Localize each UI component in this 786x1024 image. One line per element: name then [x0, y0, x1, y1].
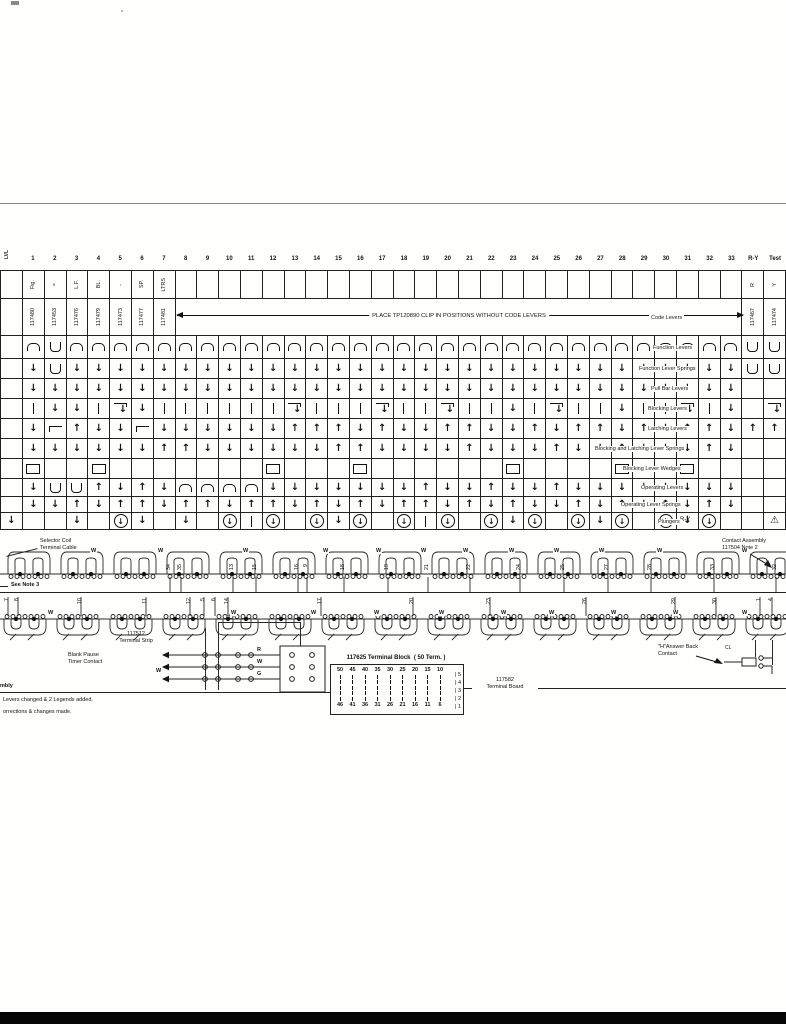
- grid-cell: [394, 271, 416, 299]
- grid-cell: [721, 459, 743, 479]
- grid-cell: ↓: [67, 439, 89, 459]
- wire-number: 13: [229, 564, 235, 570]
- scan-mark: [11, 1, 19, 5]
- grid-cell: [176, 459, 198, 479]
- grid-cell: ↓: [481, 513, 503, 530]
- grid-cell: [23, 459, 45, 479]
- grid-cell: ↑: [481, 479, 503, 497]
- column-header: 29: [633, 256, 655, 262]
- grid-cell: [764, 336, 786, 359]
- grid-cell: [1, 299, 23, 336]
- grid-cell: [197, 459, 219, 479]
- grid-cell: [88, 513, 110, 530]
- grid-cell: ↓: [67, 513, 89, 530]
- grid-cell: ↓: [481, 439, 503, 459]
- grid-cell: ↓: [67, 359, 89, 379]
- grid-cell: ↓: [721, 379, 743, 399]
- grid-cell: [699, 399, 721, 419]
- grid-cell: ↑: [394, 497, 416, 513]
- grid-cell: ↓: [481, 497, 503, 513]
- grid-cell: [263, 299, 285, 336]
- grid-cell: ↓: [154, 359, 176, 379]
- wire-color-w: W: [155, 668, 162, 674]
- grid-cell: [459, 271, 481, 299]
- column-header: 19: [415, 256, 437, 262]
- grid-cell: ↓: [132, 399, 154, 419]
- grid-cell: ↑: [67, 497, 89, 513]
- grid-cell: [328, 271, 350, 299]
- grid-cell: ↓: [88, 439, 110, 459]
- grid-cell: [219, 399, 241, 419]
- grid-cell: [415, 459, 437, 479]
- grid-cell: ↓: [263, 419, 285, 439]
- grid-cell: ↑: [241, 497, 263, 513]
- grid-cell: ↓: [699, 379, 721, 399]
- column-header: 15: [328, 256, 350, 262]
- grid-cell: ↓: [503, 479, 525, 497]
- wire-number: 12: [186, 598, 192, 604]
- grid-cell: [721, 336, 743, 359]
- grid-cell: ↓: [415, 359, 437, 379]
- grid-cell: ↑: [306, 497, 328, 513]
- grid-cell: [699, 299, 721, 336]
- grid-row-blocking-latching-springs: ↓↓↓↓↓↓↑↑↓↓↓↓↓↓↑↑↓↓↓↓↑↓↓↓↑↓↓↑↓↓↓↑↓Blockin…: [1, 439, 786, 459]
- wire-color-w: W: [420, 548, 427, 554]
- grid-cell: ↓: [415, 379, 437, 399]
- grid-row-function-lever-springs: ↓↓↓↓↓↓↓↓↓↓↓↓↓↓↓↓↓↓↓↓↓↓↓↓↓↓↓↓↓↓↓↓Function…: [1, 359, 786, 379]
- grid-cell: [612, 271, 634, 299]
- grid-cell: [655, 271, 677, 299]
- grid-cell: ↑: [568, 419, 590, 439]
- row-label: Operating Levers: [639, 485, 685, 491]
- grid-cell: [241, 336, 263, 359]
- grid-cell: [45, 419, 67, 439]
- grid-cell: ↑: [415, 479, 437, 497]
- grid-cell: ↓: [612, 359, 634, 379]
- grid-cell: ↓: [110, 513, 132, 530]
- grid-cell: ↑: [350, 497, 372, 513]
- grid-cell: ↓: [590, 497, 612, 513]
- terminal-board-label: 117582 Terminal Board: [472, 677, 538, 691]
- terminal-column: 1511: [423, 667, 433, 708]
- grid-cell: ↓: [285, 497, 307, 513]
- wire-color-w: W: [500, 610, 507, 616]
- grid-cell: ↓: [524, 497, 546, 513]
- wire-number: 27: [604, 564, 610, 570]
- wire-color-w: W: [373, 610, 380, 616]
- grid-cell: ↓: [328, 479, 350, 497]
- grid-cell: ↓: [132, 513, 154, 530]
- terminal-column: 106: [435, 667, 445, 708]
- grid-cell: ↓: [154, 497, 176, 513]
- note-line-2: orrections & changes made.: [3, 709, 71, 716]
- grid-cell: ↓: [721, 419, 743, 439]
- grid-cell: [415, 399, 437, 419]
- grid-cell: ↓: [23, 479, 45, 497]
- column-header: 28: [611, 256, 633, 262]
- grid-cell: [45, 479, 67, 497]
- grid-cell: ↓: [612, 379, 634, 399]
- column-header: 10: [218, 256, 240, 262]
- grid-cell: ↑: [415, 497, 437, 513]
- see-note-dash: [0, 586, 8, 587]
- grid-cell: ↓: [263, 439, 285, 459]
- grid-cell: ↓: [241, 439, 263, 459]
- wire-color-w: W: [462, 548, 469, 554]
- grid-cell: [197, 479, 219, 497]
- grid-cell: [285, 459, 307, 479]
- grid-cell: [524, 336, 546, 359]
- grid-cell: [394, 459, 416, 479]
- row-label: Function Levers: [651, 345, 694, 351]
- strip-wire-letter: W: [256, 659, 263, 665]
- column-header: 30: [655, 256, 677, 262]
- grid-cell: ↓: [241, 359, 263, 379]
- grid-cell: BL.: [88, 271, 110, 299]
- terminal-block-title: 117625 Terminal Block ( 50 Term. ): [330, 655, 462, 663]
- grid-cell: ↓: [524, 479, 546, 497]
- grid-cell: ↓: [23, 497, 45, 513]
- wire-number: 8: [14, 598, 20, 601]
- grid-cell: [350, 399, 372, 419]
- wire-color-w: W: [375, 548, 382, 554]
- grid-cell: ↓: [590, 359, 612, 379]
- grid-cell: [241, 513, 263, 530]
- terminal-column: 5046: [335, 667, 345, 708]
- row-label: Blocking and Latching Lever Springs: [593, 446, 686, 452]
- grid-cell: ↓: [394, 359, 416, 379]
- grid-cell: [459, 513, 481, 530]
- grid-cell: [154, 513, 176, 530]
- strip-wire-letter: G: [256, 671, 262, 677]
- grid-cell: ↓: [721, 439, 743, 459]
- grid-cell: 117480: [23, 299, 45, 336]
- grid-cell: ↓: [67, 379, 89, 399]
- column-header: 6: [131, 256, 153, 262]
- grid-row-plungers: ↓↓↓↓↓↓↓↓↓↓↓↓↓↓↓↓↓↓↓↓↓⚠Plungers: [1, 513, 786, 530]
- terminal-column: 2521: [398, 667, 408, 708]
- terminal-column: 4541: [348, 667, 358, 708]
- column-header: 8: [175, 256, 197, 262]
- grid-cell: ↓: [263, 379, 285, 399]
- wire-color-w: W: [598, 548, 605, 554]
- grid-cell: ↑: [590, 419, 612, 439]
- grid-cell: [45, 359, 67, 379]
- grid-cell: [219, 271, 241, 299]
- grid-cell: ↓: [285, 379, 307, 399]
- grid-cell: [285, 271, 307, 299]
- grid-cell: [742, 336, 764, 359]
- grid-cell: [241, 271, 263, 299]
- grid-cell: [328, 299, 350, 336]
- grid-cell: [372, 336, 394, 359]
- grid-cell: ↓: [394, 419, 416, 439]
- grid-cell: ↓: [459, 359, 481, 379]
- grid-cell: Y: [764, 271, 786, 299]
- grid-cell: [437, 459, 459, 479]
- grid-cell: [132, 419, 154, 439]
- grid-cell: ↓: [568, 513, 590, 530]
- grid-cell: ↓: [241, 379, 263, 399]
- grid-cell: ↓: [568, 379, 590, 399]
- column-header: R-Y: [742, 256, 764, 262]
- grid-cell: [764, 439, 786, 459]
- row-label: Plungers: [656, 519, 682, 525]
- grid-cell: ↑: [306, 419, 328, 439]
- grid-cell: [45, 336, 67, 359]
- column-header: 33: [721, 256, 743, 262]
- grid-cell: SP.: [132, 271, 154, 299]
- wire-color-w: W: [508, 548, 515, 554]
- grid-cell: ↓: [721, 479, 743, 497]
- grid-cell: ↓: [219, 439, 241, 459]
- grid-cell: [350, 271, 372, 299]
- grid-cell: 117473: [110, 299, 132, 336]
- grid-cell: [176, 399, 198, 419]
- grid-cell: ↓: [612, 479, 634, 497]
- grid-cell: ↑: [88, 479, 110, 497]
- row-label: Latching Levers: [646, 426, 689, 432]
- grid-row-blocking-lever-wedges: Blocking Lever Wedges: [1, 459, 786, 479]
- grid-cell: ↓: [88, 497, 110, 513]
- level-chart-grid: LVL 123456789101112131415161718192021222…: [0, 248, 786, 530]
- wire-color-w: W: [242, 548, 249, 554]
- column-header: 24: [524, 256, 546, 262]
- grid-cell: [742, 399, 764, 419]
- wire-number: 28: [647, 564, 653, 570]
- grid-cell: ↓: [350, 513, 372, 530]
- grid-cell: ↓: [721, 399, 743, 419]
- grid-cell: ↓: [503, 379, 525, 399]
- grid-cell: 117481: [154, 299, 176, 336]
- terminal-column: 2016: [410, 667, 420, 708]
- column-header: 14: [306, 256, 328, 262]
- terminal-row-number: | 5: [455, 672, 461, 678]
- column-header: 22: [480, 256, 502, 262]
- wire-color-w: W: [90, 548, 97, 554]
- grid-cell: ↓: [524, 513, 546, 530]
- wire-number: 26: [582, 598, 588, 604]
- column-header: 27: [590, 256, 612, 262]
- grid-cell: ↓: [350, 419, 372, 439]
- grid-cell: ⚠: [764, 513, 786, 530]
- grid-cell: ↑: [546, 439, 568, 459]
- grid-cell: [306, 459, 328, 479]
- grid-cell: 117453: [45, 299, 67, 336]
- grid-cell: ↓: [154, 419, 176, 439]
- grid-cell: ↓: [437, 513, 459, 530]
- grid-row-operating-levers: ↓↑↓↑↓↓↓↓↓↓↓↓↑↓↓↑↓↓↑↓↓↓↓↓↓↓↓Operating Lev…: [1, 479, 786, 497]
- grid-cell: [197, 271, 219, 299]
- grid-cell: ↓: [328, 513, 350, 530]
- grid-cell: Fig.: [23, 271, 45, 299]
- grid-cell: [699, 336, 721, 359]
- strip-wire-letter: R: [256, 647, 262, 653]
- grid-cell: R: [742, 271, 764, 299]
- grid-cell: [67, 479, 89, 497]
- schematic-page: LVL 123456789101112131415161718192021222…: [0, 0, 786, 1024]
- grid-cell: [524, 459, 546, 479]
- grid-cell: [459, 459, 481, 479]
- terminal-column: 3026: [385, 667, 395, 708]
- grid-cell: [742, 459, 764, 479]
- grid-cell: [524, 399, 546, 419]
- column-header: 18: [393, 256, 415, 262]
- grid-cell: [699, 271, 721, 299]
- grid-cell: [612, 299, 634, 336]
- grid-cell: ↓: [23, 359, 45, 379]
- blank-pause-circuit: [160, 642, 340, 694]
- column-header: 1: [22, 256, 44, 262]
- grid-cell: ↓: [437, 497, 459, 513]
- grid-cell: ↓: [132, 439, 154, 459]
- grid-cell: ↓: [437, 399, 459, 419]
- grid-cell: ↑: [132, 497, 154, 513]
- column-header: 25: [546, 256, 568, 262]
- wire-color-w: W: [741, 548, 748, 554]
- page-fold-line: [0, 203, 786, 204]
- grid-cell: ↓: [23, 419, 45, 439]
- wire-number: 1: [756, 598, 762, 601]
- grid-cell: [633, 513, 655, 530]
- column-header: 3: [66, 256, 88, 262]
- grid-cell: [350, 459, 372, 479]
- grid-cell: [176, 479, 198, 497]
- wire-number: 17: [317, 598, 323, 604]
- grid-cell: [241, 399, 263, 419]
- grid-cell: ↓: [394, 513, 416, 530]
- grid-cell: ↓: [110, 379, 132, 399]
- terminal-column: 4036: [360, 667, 370, 708]
- grid-cell: [742, 513, 764, 530]
- grid-cell: [176, 271, 198, 299]
- grid-cell: [67, 459, 89, 479]
- grid-cell: ↓: [721, 497, 743, 513]
- grid-cell: [328, 399, 350, 419]
- grid-cell: [568, 336, 590, 359]
- grid-cell: ↓: [372, 439, 394, 459]
- grid-cell: [764, 359, 786, 379]
- grid-cell: ↓: [328, 359, 350, 379]
- grid-cell: ↓: [154, 379, 176, 399]
- grid-cell: ↑: [764, 419, 786, 439]
- grid-cell: [132, 459, 154, 479]
- row-label: Code Levers: [649, 315, 684, 321]
- grid-cell: ↓: [590, 379, 612, 399]
- wire-number: 22: [466, 564, 472, 570]
- grid-cell: ↓: [394, 379, 416, 399]
- grid-cell: [721, 271, 743, 299]
- grid-cell: ↑: [197, 497, 219, 513]
- grid-cell: ↓: [372, 497, 394, 513]
- column-header: 9: [197, 256, 219, 262]
- grid-cell: [372, 513, 394, 530]
- grid-cell: ↓: [219, 513, 241, 530]
- grid-cell: [306, 336, 328, 359]
- grid-cell: [1, 459, 23, 479]
- wire-color-w: W: [610, 610, 617, 616]
- grid-cell: ↓: [372, 359, 394, 379]
- grid-cell: ↓: [350, 359, 372, 379]
- grid-cell: ↓: [132, 359, 154, 379]
- grid-cell: ↓: [176, 379, 198, 399]
- grid-cell: ↑: [459, 419, 481, 439]
- grid-cell: ↓: [590, 513, 612, 530]
- grid-cell: [742, 359, 764, 379]
- grid-cell: [219, 299, 241, 336]
- grid-cell: [328, 459, 350, 479]
- grid-cell: ↓: [459, 479, 481, 497]
- grid-cell: ↓: [88, 419, 110, 439]
- grid-cell: [394, 336, 416, 359]
- wire-number: 15: [252, 564, 258, 570]
- wire-color-w: W: [672, 610, 679, 616]
- grid-cell: [241, 479, 263, 497]
- grid-cell: ↓: [612, 419, 634, 439]
- grid-cell: ↓: [546, 419, 568, 439]
- grid-cell: ↓: [285, 479, 307, 497]
- grid-cell: [176, 336, 198, 359]
- grid-cell: [285, 336, 307, 359]
- terminal-strip-label: 117512 Terminal Strip: [112, 631, 160, 645]
- grid-cell: ↑: [372, 419, 394, 439]
- row-label: Operating Lever Springs: [619, 502, 683, 508]
- grid-row-blocking-levers: ↓↓↓↓↓↓↓↓↓↓↓↓↓Blocking Levers: [1, 399, 786, 419]
- grid-cell: [481, 336, 503, 359]
- grid-cell: [306, 299, 328, 336]
- grid-cell: ↓: [241, 419, 263, 439]
- grid-cell: ↓: [568, 439, 590, 459]
- contact-bank-upper: [0, 540, 786, 592]
- grid-cell: [1, 399, 23, 419]
- grid-cell: ↑: [699, 419, 721, 439]
- column-header: 17: [371, 256, 393, 262]
- grid-row-part-numbers: 1174801174531174761174791174731174771174…: [1, 299, 786, 336]
- grid-cell: [23, 336, 45, 359]
- column-header: Test: [764, 256, 786, 262]
- wire-color-w: W: [157, 548, 164, 554]
- board-line-left: [0, 692, 330, 693]
- grid-cell: ↓: [546, 379, 568, 399]
- wire-color-w: W: [553, 548, 560, 554]
- column-header: 11: [240, 256, 262, 262]
- terminal-row-number: | 3: [455, 688, 461, 694]
- grid-cell: ↑: [285, 419, 307, 439]
- grid-cell: [503, 336, 525, 359]
- grid-cell: [437, 336, 459, 359]
- grid-cell: ↓: [328, 379, 350, 399]
- grid-cell: ↓: [503, 439, 525, 459]
- grid-cell: [197, 336, 219, 359]
- grid-cell: ↓: [23, 379, 45, 399]
- grid-cell: [263, 271, 285, 299]
- wire-number: 29: [671, 598, 677, 604]
- grid-cell: ↓: [45, 379, 67, 399]
- cl-label: CL: [725, 645, 731, 651]
- grid-cell: ↓: [110, 439, 132, 459]
- grid-cell: [88, 399, 110, 419]
- wire-number: 20: [409, 598, 415, 604]
- grid-cell: ↓: [176, 513, 198, 530]
- grid-cell: [241, 299, 263, 336]
- grid-cell: ↓: [721, 359, 743, 379]
- grid-cell: [1, 439, 23, 459]
- grid-row-pull-bar-levers: ↓↓↓↓↓↓↓↓↓↓↓↓↓↓↓↓↓↓↓↓↓↓↓↓↓↓↓↓↓↓↓↓↓Pull Ba…: [1, 379, 786, 399]
- grid-cell: ↓: [481, 359, 503, 379]
- wire-color-w: W: [47, 610, 54, 616]
- grid-cell: ↓: [132, 379, 154, 399]
- grid-cell: [503, 271, 525, 299]
